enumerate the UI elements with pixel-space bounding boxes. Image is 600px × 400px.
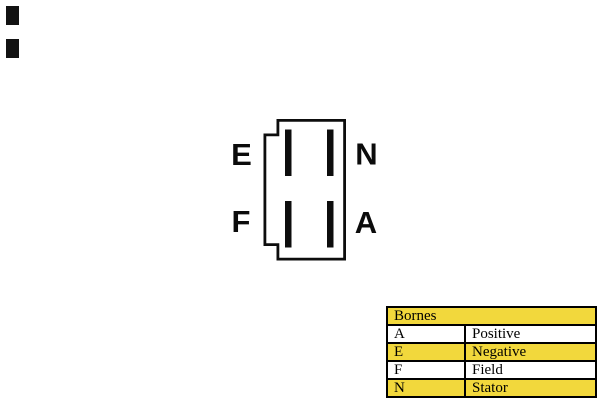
table-row: A Positive (387, 325, 596, 343)
terminal-cell: F (387, 361, 465, 379)
terminal-label-a: A (355, 205, 377, 240)
table-row: F Field (387, 361, 596, 379)
terminal-label-e: E (231, 137, 252, 172)
scan-artifact-mark (6, 39, 19, 58)
description-cell: Negative (465, 343, 596, 361)
table-row: E Negative (387, 343, 596, 361)
page: E N F A Bornes A Positive E Negative F F… (0, 0, 600, 400)
description-cell: Positive (465, 325, 596, 343)
pin-bottom-left (285, 201, 292, 248)
terminal-label-n: N (355, 137, 377, 172)
pin-top-right (327, 130, 334, 177)
pin-top-left (285, 130, 292, 177)
connector-diagram: E N F A (228, 108, 388, 270)
terminal-cell: E (387, 343, 465, 361)
pin-bottom-right (327, 201, 334, 248)
description-cell: Field (465, 361, 596, 379)
table-row: N Stator (387, 379, 596, 397)
legend-header-cell: Bornes (387, 307, 596, 325)
scan-artifact-mark (6, 6, 19, 25)
terminal-cell: A (387, 325, 465, 343)
legend-table: Bornes A Positive E Negative F Field N S… (386, 306, 597, 398)
terminal-label-f: F (232, 204, 251, 239)
description-cell: Stator (465, 379, 596, 397)
terminal-cell: N (387, 379, 465, 397)
legend-header-row: Bornes (387, 307, 596, 325)
